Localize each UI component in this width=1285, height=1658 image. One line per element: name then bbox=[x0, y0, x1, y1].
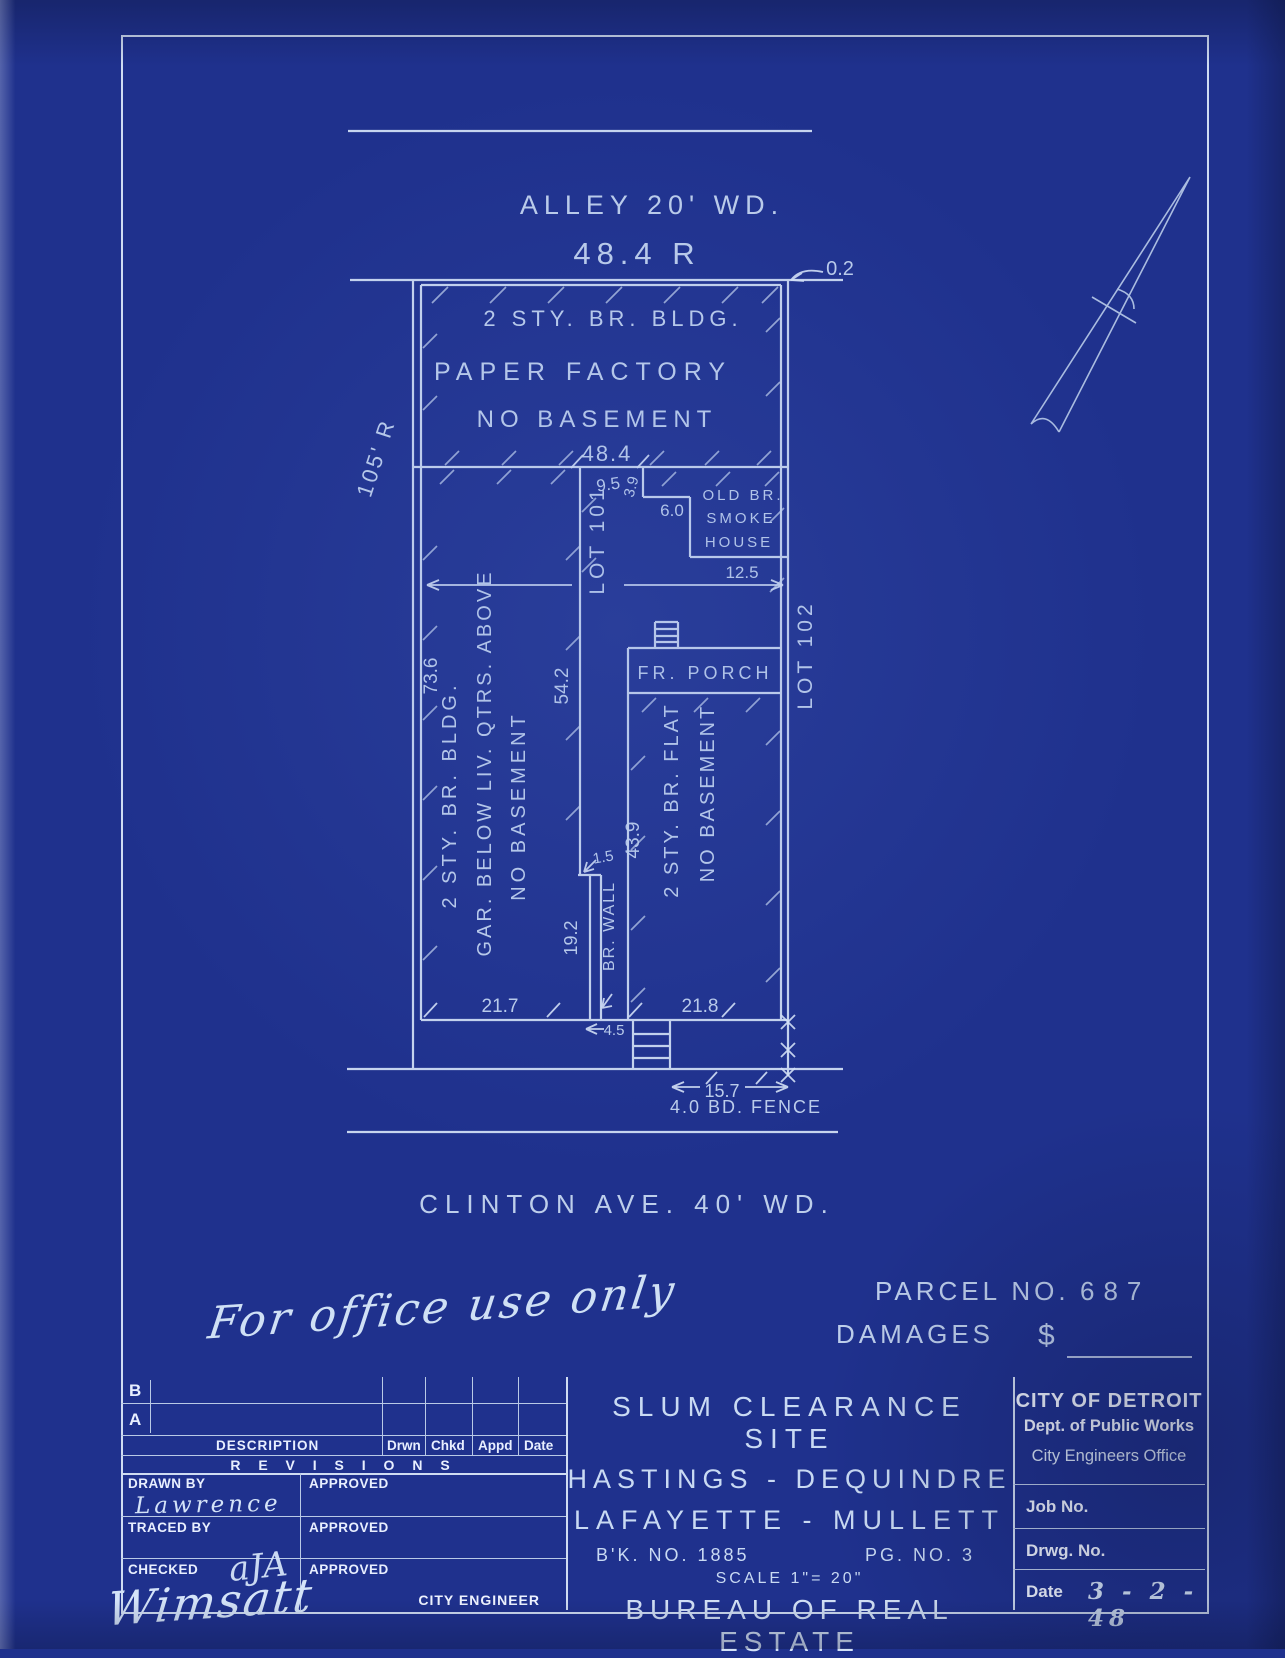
garage-line2: GAR. BELOW LIV. QTRS. ABOVE bbox=[474, 569, 496, 956]
agency-header: CITY OF DETROIT Dept. of Public Works Ci… bbox=[1013, 1377, 1205, 1485]
approved-label: APPROVED bbox=[309, 1520, 389, 1535]
damages-label: DAMAGES bbox=[836, 1319, 994, 1349]
revision-row-b: B bbox=[121, 1377, 566, 1404]
appd-header: Appd bbox=[478, 1438, 513, 1453]
title-block-right: CITY OF DETROIT Dept. of Public Works Ci… bbox=[1013, 1377, 1205, 1610]
flat-depth-dim: 43.9 bbox=[623, 822, 644, 859]
br-wall-pointer bbox=[602, 994, 612, 1008]
plan-labels: ALLEY 20' WD. 48.4 R 0.2 2 STY. BR. BLDG… bbox=[351, 190, 1150, 1352]
dollar-sign: $ bbox=[1038, 1319, 1055, 1352]
date-label: Date bbox=[1026, 1582, 1063, 1602]
project-title: SLUM CLEARANCE SITE bbox=[566, 1391, 1013, 1455]
drwn-header: Drwn bbox=[387, 1438, 421, 1453]
smokehouse-line3: HOUSE bbox=[705, 534, 773, 551]
lot102-label: LOT 102 bbox=[794, 600, 817, 709]
job-number-row: Job No. bbox=[1013, 1485, 1205, 1529]
project-streets-1: HASTINGS - DEQUINDRE bbox=[566, 1464, 1013, 1495]
board-fence-label: 4.0 BD. FENCE bbox=[670, 1097, 822, 1117]
north-arrow-icon bbox=[1031, 177, 1190, 432]
drawn-by-label: DRAWN BY bbox=[128, 1476, 206, 1491]
street-label: CLINTON AVE. 40' WD. bbox=[419, 1189, 835, 1219]
chkd-header: Chkd bbox=[431, 1438, 465, 1453]
title-block-left: B A DESCRIPTION Drwn Chkd Appd Date R E … bbox=[121, 1377, 568, 1610]
approved-label: APPROVED bbox=[309, 1476, 389, 1491]
plan-lines bbox=[347, 131, 843, 1132]
smokehouse-line1: OLD BR. bbox=[702, 487, 783, 504]
job-number-label: Job No. bbox=[1026, 1497, 1088, 1517]
drawn-by-name: Lawrence bbox=[135, 1491, 282, 1520]
revision-letter-a: A bbox=[129, 1410, 141, 1430]
smokehouse-line2: SMOKE bbox=[706, 510, 775, 527]
revisions-title: R E V I S I O N S bbox=[121, 1457, 566, 1473]
project-streets-2: LAFAYETTE - MULLETT bbox=[566, 1505, 1013, 1536]
party-wall-length-dim: 19.2 bbox=[561, 920, 581, 955]
corner-offset-dim: 0.2 bbox=[826, 258, 854, 280]
garage-front-dim: 21.7 bbox=[482, 996, 519, 1017]
book-number: B'K. NO. 1885 bbox=[596, 1545, 750, 1566]
traced-by-row: TRACED BY APPROVED bbox=[121, 1517, 566, 1559]
revision-row-a: A bbox=[121, 1404, 566, 1436]
smokehouse-dim-bottom: 12.5 bbox=[725, 563, 758, 582]
side-dim-54-2: 54.2 bbox=[552, 668, 573, 705]
br-wall-label: BR. WALL bbox=[601, 881, 618, 971]
revisions-title-row: R E V I S I O N S bbox=[121, 1456, 566, 1473]
party-wall-offset-dim: 1.5 bbox=[591, 847, 614, 867]
drawing-number-row: Drwg. No. bbox=[1013, 1529, 1205, 1570]
parcel-number: 687 bbox=[1080, 1276, 1150, 1306]
gap-dim-arrow bbox=[586, 1024, 604, 1034]
factory-line3: NO BASEMENT bbox=[477, 406, 718, 433]
gap-dim-4-5: 4.5 bbox=[604, 1022, 625, 1039]
bureau-title: BUREAU OF REAL ESTATE bbox=[566, 1594, 1013, 1658]
alley-frontage-dim: 48.4 R bbox=[573, 236, 700, 271]
checked-label: CHECKED bbox=[128, 1562, 198, 1577]
factory-line1: 2 STY. BR. BLDG. bbox=[483, 306, 742, 331]
garage-line1: 2 STY. BR. BLDG. bbox=[439, 681, 461, 908]
date-value: 3 - 2 - 48 bbox=[1088, 1578, 1205, 1632]
garage-line3: NO BASEMENT bbox=[508, 711, 530, 901]
description-header: DESCRIPTION bbox=[216, 1438, 319, 1453]
drawing-number-label: Drwg. No. bbox=[1026, 1541, 1105, 1561]
approved-label: APPROVED bbox=[309, 1562, 389, 1577]
date-header: Date bbox=[524, 1438, 553, 1453]
agency-dept: Dept. of Public Works bbox=[1013, 1413, 1205, 1436]
title-block: B A DESCRIPTION Drwn Chkd Appd Date R E … bbox=[121, 1377, 1205, 1610]
revisions-col-divider bbox=[382, 1377, 383, 1456]
porch-label: FR. PORCH bbox=[638, 663, 773, 683]
title-block-center: SLUM CLEARANCE SITE HASTINGS - DEQUINDRE… bbox=[566, 1377, 1015, 1610]
revisions-header-row: DESCRIPTION Drwn Chkd Appd Date bbox=[121, 1436, 566, 1456]
flat-line1: 2 STY. BR. FLAT bbox=[661, 702, 683, 897]
drawn-by-row: DRAWN BY Lawrence APPROVED bbox=[121, 1473, 566, 1517]
revision-letter-b: B bbox=[129, 1381, 141, 1401]
flat-front-dim: 21.8 bbox=[682, 996, 719, 1017]
porch-steps bbox=[655, 622, 678, 648]
blueprint-scan: { "drawing": { "alley_label": "ALLEY 20'… bbox=[0, 0, 1285, 1649]
scale-note: SCALE 1"= 20" bbox=[566, 1570, 1013, 1588]
revisions-col-divider bbox=[425, 1377, 426, 1456]
parcel-label: PARCEL NO. bbox=[875, 1276, 1070, 1306]
flat-line2: NO BASEMENT bbox=[697, 704, 719, 883]
smokehouse-dim-step: 6.0 bbox=[660, 501, 684, 520]
lot101-label: LOT 101 bbox=[586, 485, 609, 594]
page-number: PG. NO. 3 bbox=[865, 1545, 975, 1566]
revisions-col-divider bbox=[472, 1377, 473, 1456]
front-steps bbox=[633, 1021, 670, 1069]
checked-row: CHECKED aJA Wimsatt APPROVED CITY ENGINE… bbox=[121, 1559, 566, 1610]
book-page-row: B'K. NO. 1885 PG. NO. 3 bbox=[566, 1545, 1013, 1566]
factory-line2: PAPER FACTORY bbox=[434, 358, 732, 386]
lot-depth-dim: 105' R bbox=[351, 415, 400, 500]
revisions-col-divider bbox=[518, 1377, 519, 1456]
alley-label: ALLEY 20' WD. bbox=[520, 190, 784, 220]
factory-width-dim: 48.4 bbox=[582, 441, 633, 466]
city-engineer-label: CITY ENGINEER bbox=[418, 1592, 540, 1608]
revisions-table: B A DESCRIPTION Drwn Chkd Appd Date R E … bbox=[121, 1377, 566, 1475]
revision-letter-divider bbox=[150, 1380, 151, 1433]
traced-by-label: TRACED BY bbox=[128, 1520, 211, 1535]
smokehouse-dim-side: 3.9 bbox=[621, 475, 643, 500]
agency-office: City Engineers Office bbox=[1013, 1436, 1205, 1466]
signoff-table: DRAWN BY Lawrence APPROVED TRACED BY APP… bbox=[121, 1473, 566, 1610]
agency-city: CITY OF DETROIT bbox=[1013, 1377, 1205, 1413]
date-row: Date 3 - 2 - 48 bbox=[1013, 1570, 1205, 1611]
